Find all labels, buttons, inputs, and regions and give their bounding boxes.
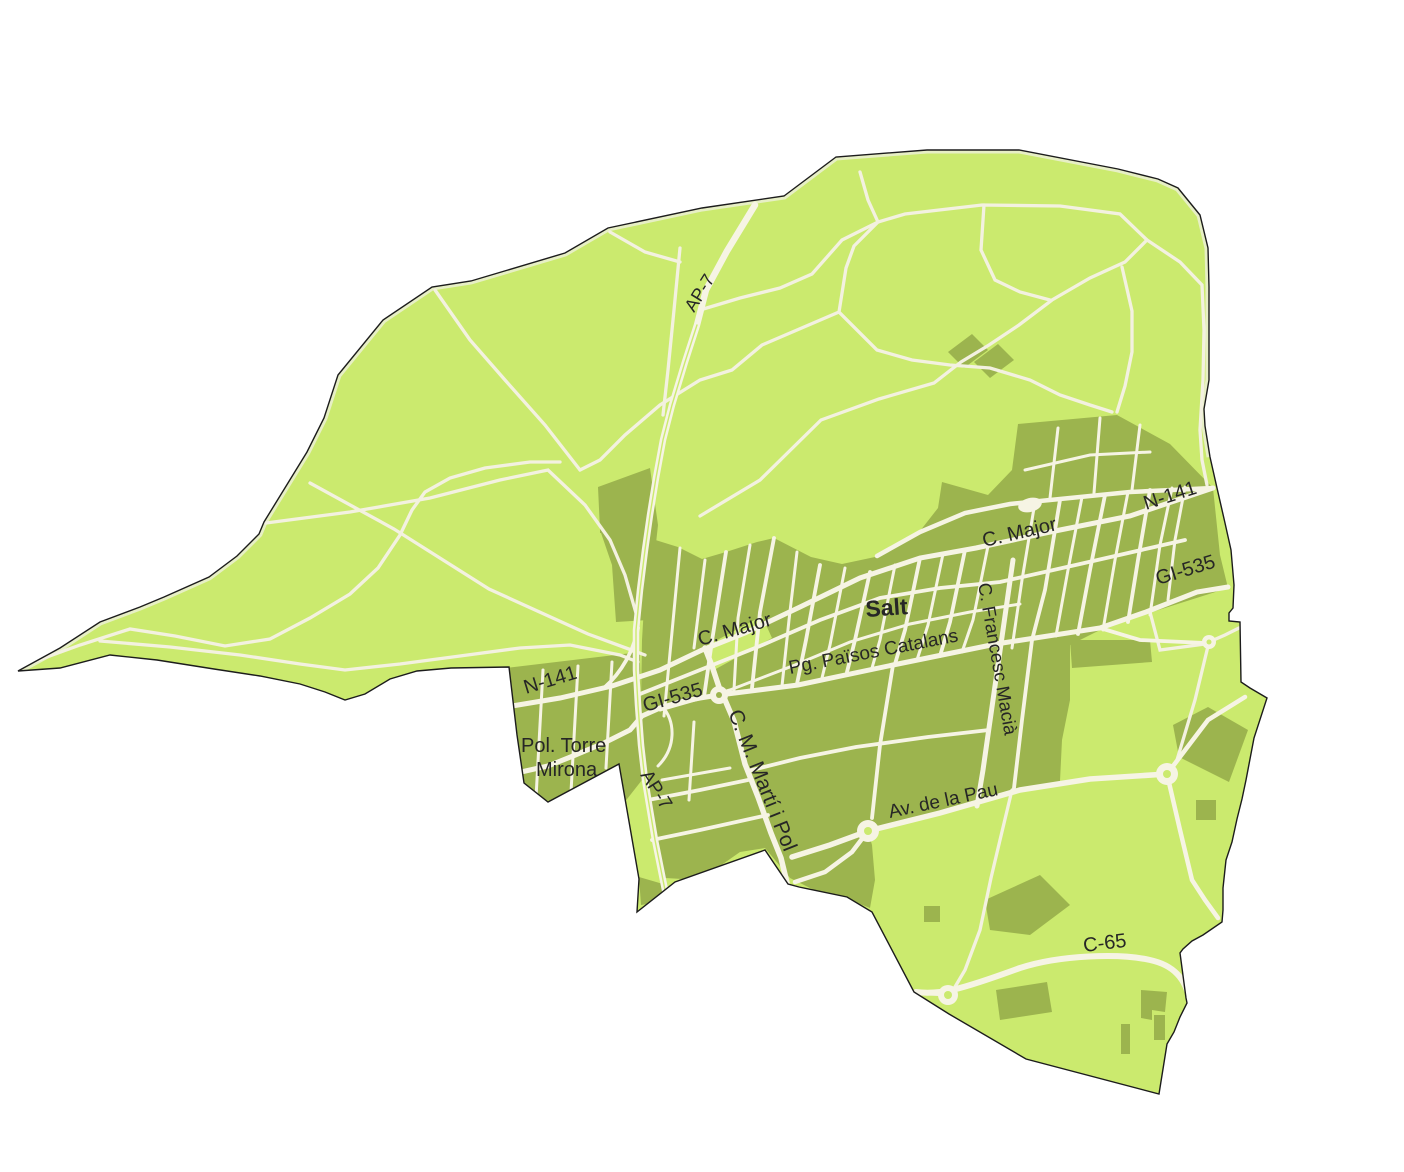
svg-text:Mirona: Mirona <box>536 759 598 781</box>
svg-text:Salt: Salt <box>865 593 909 622</box>
svg-text:Pol. Torre: Pol. Torre <box>521 735 606 757</box>
